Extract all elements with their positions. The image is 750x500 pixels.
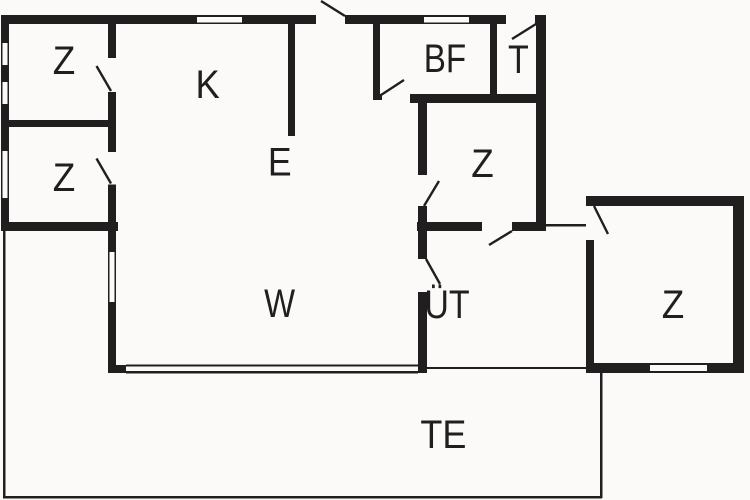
svg-text:T: T [508,36,529,81]
svg-text:E: E [268,141,292,185]
svg-text:TE: TE [420,413,466,457]
svg-text:Z: Z [471,142,493,187]
svg-text:BF: BF [424,36,466,81]
svg-text:K: K [195,62,220,107]
svg-text:Z: Z [662,283,684,328]
svg-text:W: W [264,281,295,326]
svg-text:ÜT: ÜT [424,281,469,326]
svg-text:Z: Z [53,156,75,201]
svg-text:Z: Z [53,39,75,84]
